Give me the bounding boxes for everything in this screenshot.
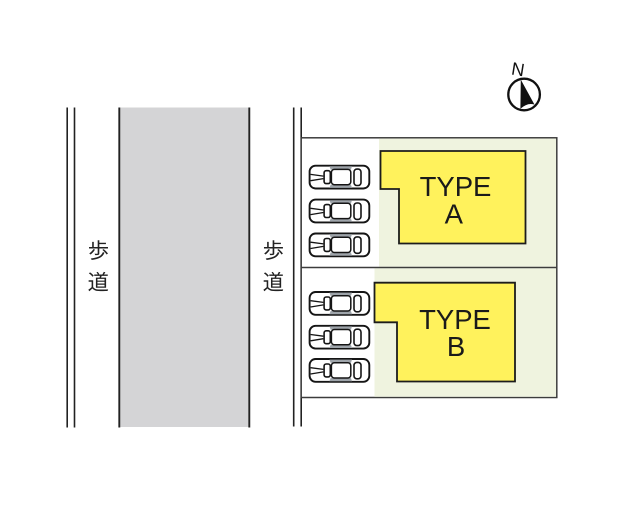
svg-text:N: N <box>510 59 526 81</box>
svg-text:TYPE: TYPE <box>420 171 492 202</box>
svg-text:B: B <box>447 331 465 362</box>
svg-text:A: A <box>445 198 464 229</box>
